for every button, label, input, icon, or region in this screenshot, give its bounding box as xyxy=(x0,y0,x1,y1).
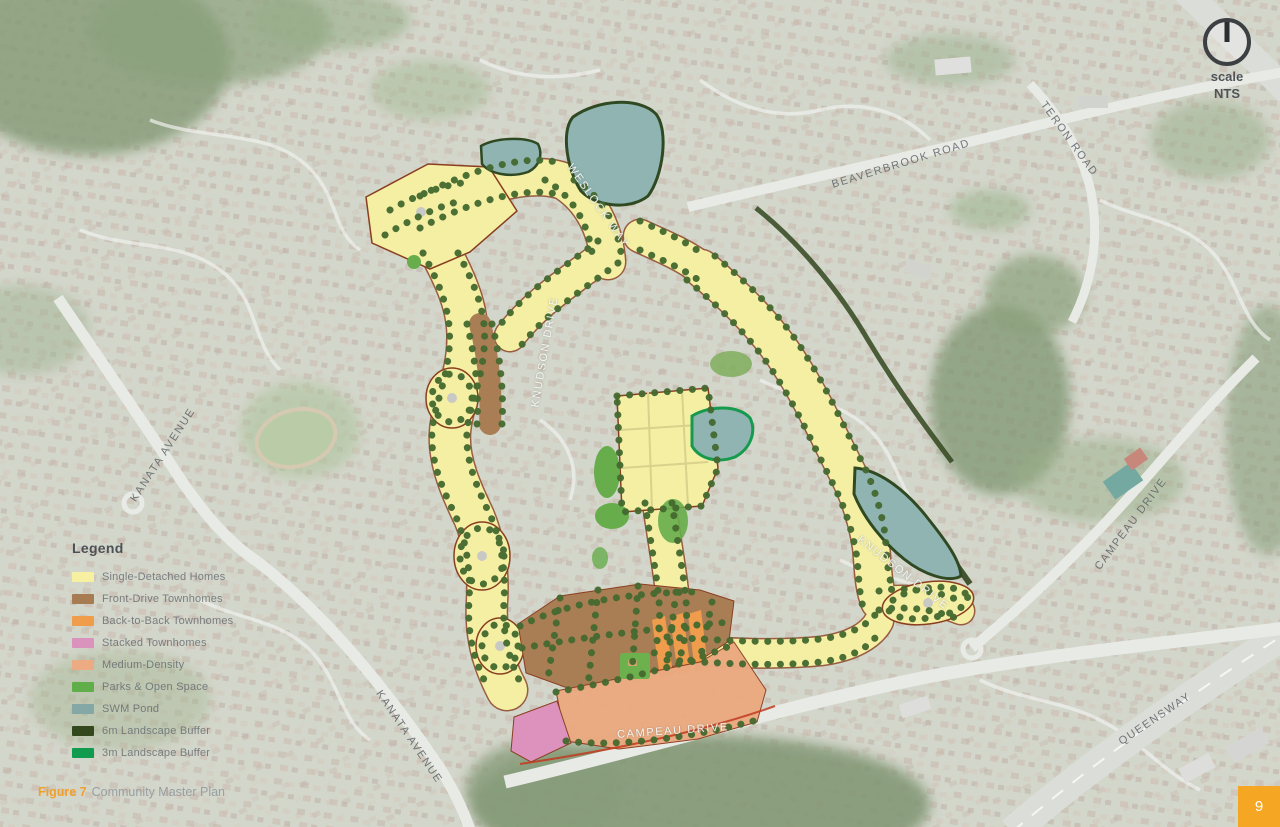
legend-swatch xyxy=(72,638,94,648)
legend-swatch xyxy=(72,660,94,670)
legend-item: Medium-Density xyxy=(72,654,233,676)
legend-title: Legend xyxy=(72,540,233,556)
figure-number: Figure 7 xyxy=(38,785,87,799)
legend-swatch xyxy=(72,616,94,626)
scale-widget: scale NTS xyxy=(1203,18,1251,102)
legend-swatch xyxy=(72,726,94,736)
legend-item-label: Parks & Open Space xyxy=(102,681,208,693)
master-plan-page: BEAVERBROOK ROAD TERON ROAD WESLOCK WAY … xyxy=(0,0,1280,827)
legend-item-label: Single-Detached Homes xyxy=(102,571,225,583)
legend-item: Single-Detached Homes xyxy=(72,566,233,588)
legend-item: Stacked Townhomes xyxy=(72,632,233,654)
legend: Legend Single-Detached Homes Front-Drive… xyxy=(72,540,233,764)
legend-item: SWM Pond xyxy=(72,698,233,720)
scale-needle xyxy=(1225,22,1230,42)
legend-item: 6m Landscape Buffer xyxy=(72,720,233,742)
figure-caption: Figure 7Community Master Plan xyxy=(38,785,225,799)
figure-title: Community Master Plan xyxy=(92,785,225,799)
legend-item: Front-Drive Townhomes xyxy=(72,588,233,610)
scale-label: scale xyxy=(1203,68,1251,85)
scale-nts-label: NTS xyxy=(1203,85,1251,102)
legend-item: 3m Landscape Buffer xyxy=(72,742,233,764)
legend-item-list: Single-Detached Homes Front-Drive Townho… xyxy=(72,566,233,764)
legend-item-label: Front-Drive Townhomes xyxy=(102,593,223,605)
legend-item-label: Medium-Density xyxy=(102,659,184,671)
legend-item: Parks & Open Space xyxy=(72,676,233,698)
legend-item-label: Back-to-Back Townhomes xyxy=(102,615,233,627)
legend-swatch xyxy=(72,682,94,692)
legend-item-label: Stacked Townhomes xyxy=(102,637,207,649)
legend-swatch xyxy=(72,748,94,758)
page-number-badge: 9 xyxy=(1238,786,1280,827)
legend-item-label: SWM Pond xyxy=(102,703,159,715)
legend-swatch xyxy=(72,704,94,714)
north-scale-icon xyxy=(1203,18,1251,66)
legend-swatch xyxy=(72,594,94,604)
legend-item-label: 3m Landscape Buffer xyxy=(102,747,210,759)
legend-swatch xyxy=(72,572,94,582)
legend-item-label: 6m Landscape Buffer xyxy=(102,725,210,737)
legend-item: Back-to-Back Townhomes xyxy=(72,610,233,632)
